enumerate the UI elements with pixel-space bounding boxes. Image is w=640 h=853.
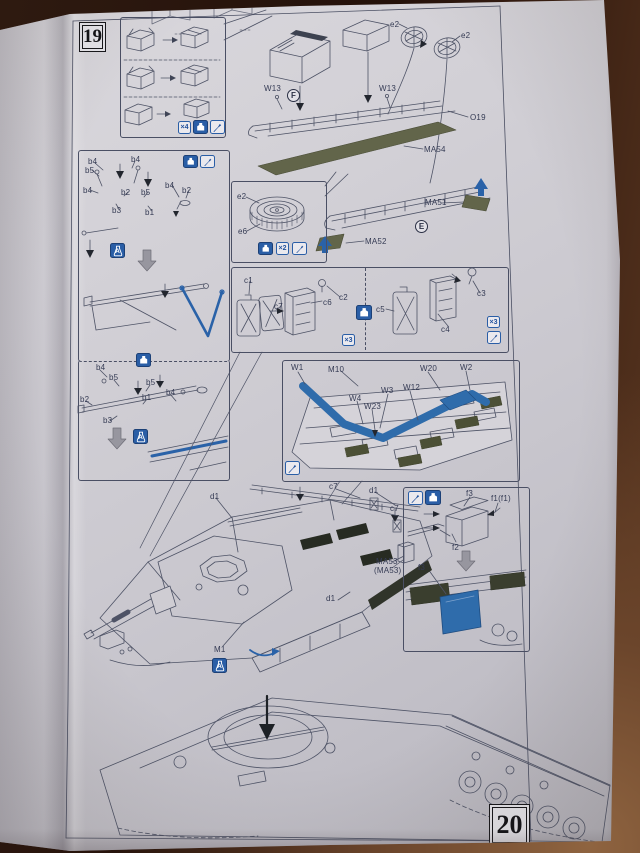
part-label-b3: b3 <box>112 207 121 215</box>
quantity-icon: ×2 <box>276 242 289 255</box>
part-label-b1: b1 <box>145 209 154 217</box>
paint-color-icon: A <box>133 429 148 444</box>
knife-icon <box>408 491 423 505</box>
knife-icon <box>200 155 215 168</box>
glue-icon <box>356 305 372 320</box>
part-label-b4: b4 <box>131 156 140 164</box>
panel-w-parts <box>282 360 520 482</box>
part-label-b2: b2 <box>182 187 191 195</box>
part-label-b5: b5 <box>141 189 150 197</box>
rear-rack <box>325 187 490 230</box>
part-label-m10: M10 <box>328 366 344 374</box>
part-label-w13: W13 <box>379 85 396 93</box>
glue-icon <box>136 353 151 367</box>
part-label-b4: b4 <box>88 158 97 166</box>
part-label-d1: d1 <box>326 595 335 603</box>
glue-icon <box>183 155 198 168</box>
part-label-w4: W4 <box>349 395 361 403</box>
bottom-tank-art <box>100 696 610 842</box>
part-label-f3: f3 <box>418 564 425 572</box>
part-label-w13: W13 <box>264 85 281 93</box>
part-label-b4: b4 <box>165 182 174 190</box>
part-label-e2: e2 <box>461 32 470 40</box>
part-label-e2: e2 <box>390 21 399 29</box>
paint-color-icon: A <box>212 658 227 673</box>
part-label-b3: b3 <box>103 417 112 425</box>
knife-icon <box>285 461 300 475</box>
part-label-ma53: MA53 <box>376 558 398 566</box>
part-label-c4: c4 <box>441 326 450 334</box>
part-label-c1: c1 <box>244 277 253 285</box>
glue-icon <box>425 490 441 505</box>
instruction-page: 19 20 F E e2 e2 W13 W13 O19 MA54 MA51 MA… <box>0 0 640 853</box>
glue-icon <box>193 120 208 134</box>
hull-art <box>84 485 432 672</box>
part-label-b2: b2 <box>80 396 89 404</box>
part-label-b2: b2 <box>121 189 130 197</box>
part-label-c7: c7 <box>274 303 283 311</box>
part-label-w2: W2 <box>460 364 472 372</box>
part-label-c5: c5 <box>376 306 385 314</box>
part-label-b4: b4 <box>96 364 105 372</box>
part-label-c3: c3 <box>477 290 486 298</box>
part-label-m1: M1 <box>214 646 226 654</box>
mesh-disc-e2-left <box>388 25 429 114</box>
part-label-ma53-alt: (MA53) <box>374 567 401 575</box>
pe-part-ma51 <box>462 195 490 211</box>
part-label-c6: c6 <box>323 299 332 307</box>
part-label-d1: d1 <box>210 493 219 501</box>
part-label-o19: O19 <box>470 114 486 122</box>
panel-bracket-assembly <box>78 150 230 362</box>
part-label-w20: W20 <box>420 365 437 373</box>
blue-rotate-arrow <box>250 650 274 655</box>
paint-color-icon: A <box>110 243 125 258</box>
knife-icon <box>292 242 307 255</box>
circled-letter-e: E <box>415 220 428 233</box>
part-label-w23: W23 <box>364 403 381 411</box>
quantity-icon: ×3 <box>487 316 500 328</box>
circled-letter-f: F <box>287 89 300 102</box>
part-label-b5: b5 <box>109 374 118 382</box>
part-label-ma54: MA54 <box>424 146 446 154</box>
part-label-f2: f2 <box>452 544 459 552</box>
part-label-w12: W12 <box>403 384 420 392</box>
mesh-disc-e2-right <box>430 36 462 183</box>
part-label-b4: b4 <box>166 389 175 397</box>
part-label-c2: c2 <box>339 294 348 302</box>
step-number-19: 19 <box>79 22 106 52</box>
part-label-f1: f1(f1) <box>491 495 511 503</box>
blue-up-arrow <box>474 178 488 196</box>
part-label-w1: W1 <box>291 364 303 372</box>
quantity-icon: ×4 <box>178 121 191 134</box>
part-label-d1: d1 <box>369 487 378 495</box>
part-label-w3: W3 <box>381 387 393 395</box>
part-label-e2: e2 <box>237 193 246 201</box>
quantity-icon: ×3 <box>342 334 355 346</box>
part-label-f3: f3 <box>466 490 473 498</box>
knife-icon <box>487 331 501 344</box>
part-label-e6: e6 <box>238 228 247 236</box>
part-label-ma51: MA51 <box>425 199 447 207</box>
part-label-c7: c7 <box>390 505 399 513</box>
knife-icon <box>210 120 225 134</box>
part-label-b4: b4 <box>83 187 92 195</box>
glue-icon <box>258 242 273 255</box>
part-label-ma52: MA52 <box>365 238 387 246</box>
step-number-20: 20 <box>489 804 530 846</box>
part-label-b5: b5 <box>146 379 155 387</box>
photo-of-instruction-sheet: 19 20 F E e2 e2 W13 W13 O19 MA54 MA51 MA… <box>0 0 640 853</box>
part-label-b5: b5 <box>85 167 94 175</box>
part-label-b1: b1 <box>142 394 151 402</box>
part-label-c7: c7 <box>329 483 338 491</box>
